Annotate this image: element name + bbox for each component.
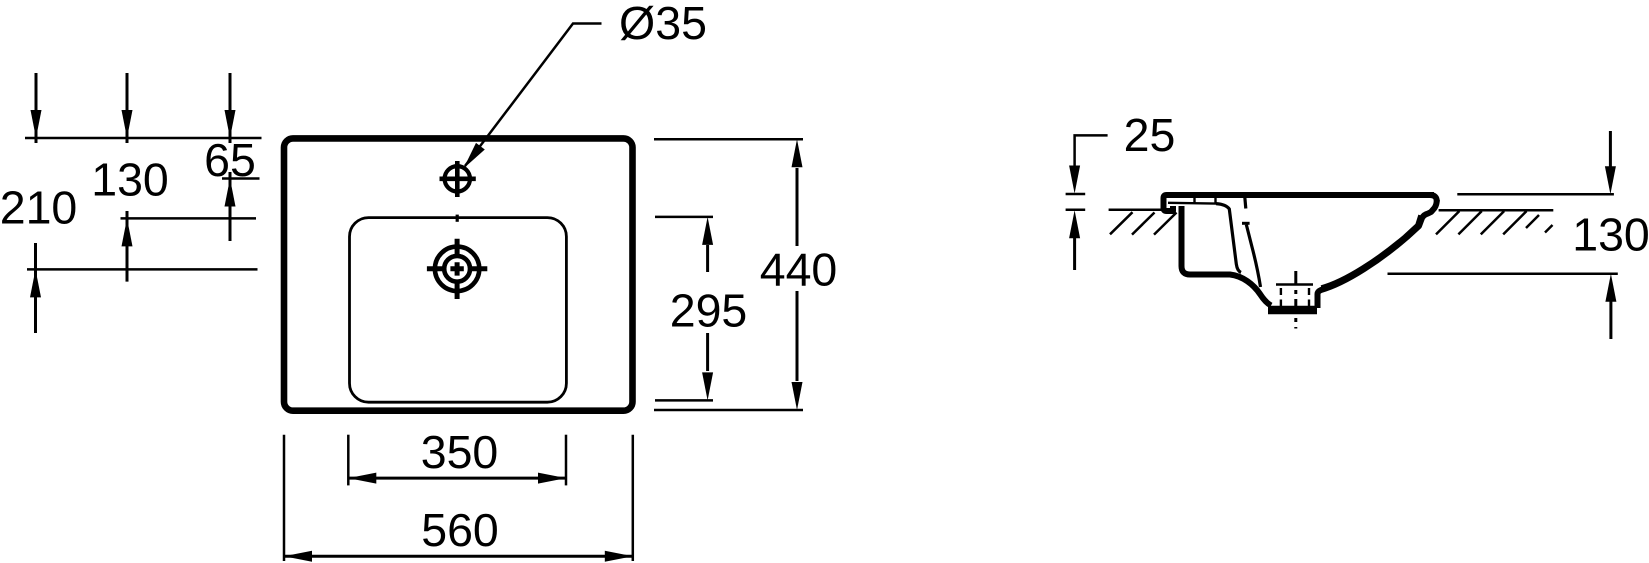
svg-text:25: 25 bbox=[1124, 109, 1176, 161]
svg-text:210: 210 bbox=[0, 182, 77, 234]
svg-text:560: 560 bbox=[421, 504, 499, 556]
svg-text:130: 130 bbox=[1572, 209, 1649, 261]
svg-text:65: 65 bbox=[204, 134, 256, 186]
svg-text:350: 350 bbox=[421, 426, 499, 478]
svg-text:440: 440 bbox=[760, 244, 838, 296]
svg-text:295: 295 bbox=[670, 285, 748, 337]
svg-text:Ø35: Ø35 bbox=[619, 0, 707, 49]
svg-text:130: 130 bbox=[91, 154, 169, 206]
